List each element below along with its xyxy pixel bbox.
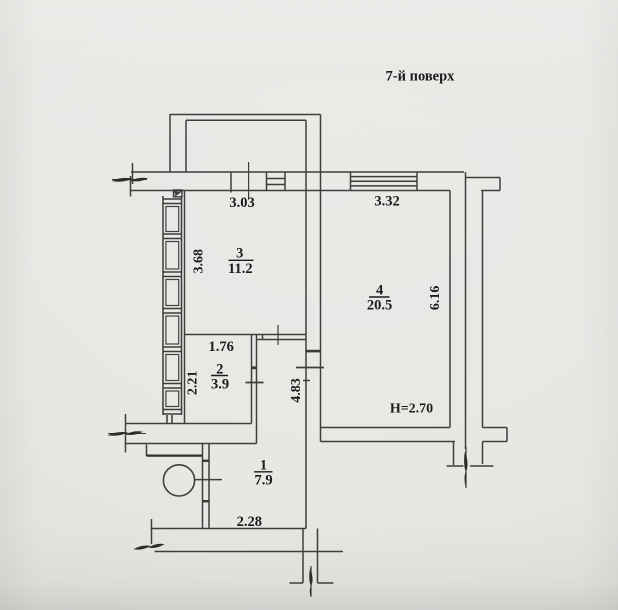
svg-text:3.68: 3.68 xyxy=(191,249,206,274)
svg-text:Н=2.70: Н=2.70 xyxy=(390,401,433,416)
svg-text:3: 3 xyxy=(236,246,243,262)
svg-text:3.9: 3.9 xyxy=(211,376,229,392)
svg-text:3.32: 3.32 xyxy=(374,194,399,210)
svg-text:3.03: 3.03 xyxy=(229,195,254,211)
svg-text:6.16: 6.16 xyxy=(428,286,443,311)
svg-text:2.28: 2.28 xyxy=(237,514,262,530)
svg-text:7.9: 7.9 xyxy=(254,472,272,488)
svg-text:2.21: 2.21 xyxy=(186,371,201,396)
svg-text:1: 1 xyxy=(260,457,267,473)
svg-text:4: 4 xyxy=(376,282,383,298)
svg-text:11.2: 11.2 xyxy=(228,261,253,277)
svg-text:7-й поверх: 7-й поверх xyxy=(386,69,456,85)
svg-text:1.76: 1.76 xyxy=(209,339,234,355)
svg-text:20.5: 20.5 xyxy=(367,297,392,313)
svg-text:4.83: 4.83 xyxy=(289,378,304,403)
